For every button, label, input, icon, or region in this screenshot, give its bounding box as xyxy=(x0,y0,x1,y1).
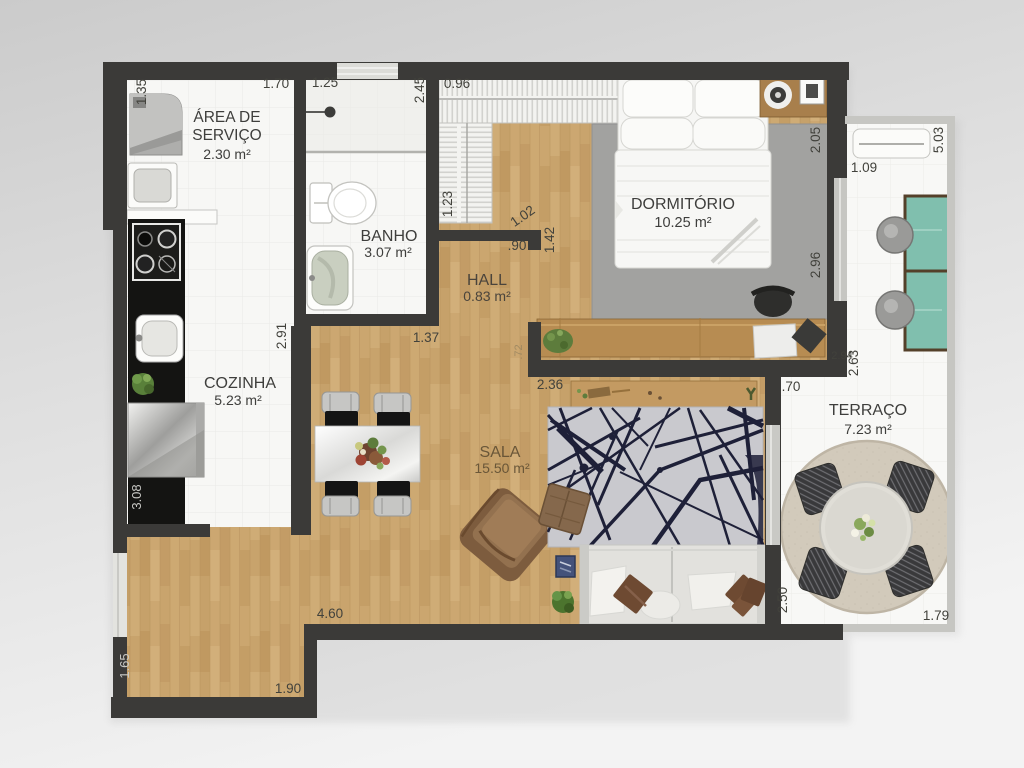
svg-text:1.70: 1.70 xyxy=(263,76,289,91)
svg-text:HALL: HALL xyxy=(467,272,507,289)
svg-text:.90: .90 xyxy=(508,238,527,253)
svg-text:TERRAÇO: TERRAÇO xyxy=(829,402,907,419)
svg-text:15.50 m²: 15.50 m² xyxy=(474,460,530,476)
svg-text:SALA: SALA xyxy=(480,444,521,461)
svg-text:.70: .70 xyxy=(782,379,801,394)
svg-text:1.42: 1.42 xyxy=(542,227,557,253)
svg-text:DORMITÓRIO: DORMITÓRIO xyxy=(631,194,735,213)
svg-text:BANHO: BANHO xyxy=(361,228,418,245)
svg-text:10.25 m²: 10.25 m² xyxy=(654,215,711,231)
svg-text:5.23 m²: 5.23 m² xyxy=(214,392,262,408)
svg-text:4.60: 4.60 xyxy=(317,606,343,621)
svg-text:1.79: 1.79 xyxy=(923,608,949,623)
svg-text:SERVIÇO: SERVIÇO xyxy=(192,127,262,144)
svg-text:7.23 m²: 7.23 m² xyxy=(844,421,892,437)
svg-text:1.23: 1.23 xyxy=(440,191,455,217)
svg-text:2.96: 2.96 xyxy=(808,252,823,278)
svg-text:2.91: 2.91 xyxy=(274,323,289,349)
svg-text:0.83 m²: 0.83 m² xyxy=(463,288,511,304)
svg-text:ÁREA DE: ÁREA DE xyxy=(193,109,260,126)
svg-text:1.35: 1.35 xyxy=(134,79,149,105)
svg-text:1.90: 1.90 xyxy=(275,681,301,696)
svg-text:1.37: 1.37 xyxy=(413,330,439,345)
svg-text:3.08: 3.08 xyxy=(129,484,144,509)
svg-text:COZINHA: COZINHA xyxy=(204,375,276,392)
svg-text:5.03: 5.03 xyxy=(931,127,946,153)
svg-text:2.05: 2.05 xyxy=(808,127,823,153)
svg-text:2.45: 2.45 xyxy=(412,77,427,103)
svg-text:2.30 m²: 2.30 m² xyxy=(203,146,251,162)
svg-text:1.25: 1.25 xyxy=(312,75,338,90)
svg-text:3.07 m²: 3.07 m² xyxy=(364,244,412,260)
svg-text:0.96: 0.96 xyxy=(444,76,470,91)
svg-text:2.36: 2.36 xyxy=(537,377,563,392)
svg-text:2.50: 2.50 xyxy=(775,587,790,613)
svg-text:.72: .72 xyxy=(513,344,525,359)
svg-text:2.63: 2.63 xyxy=(846,350,861,376)
svg-text:1.65: 1.65 xyxy=(117,653,132,678)
svg-text:1.09: 1.09 xyxy=(851,160,877,175)
